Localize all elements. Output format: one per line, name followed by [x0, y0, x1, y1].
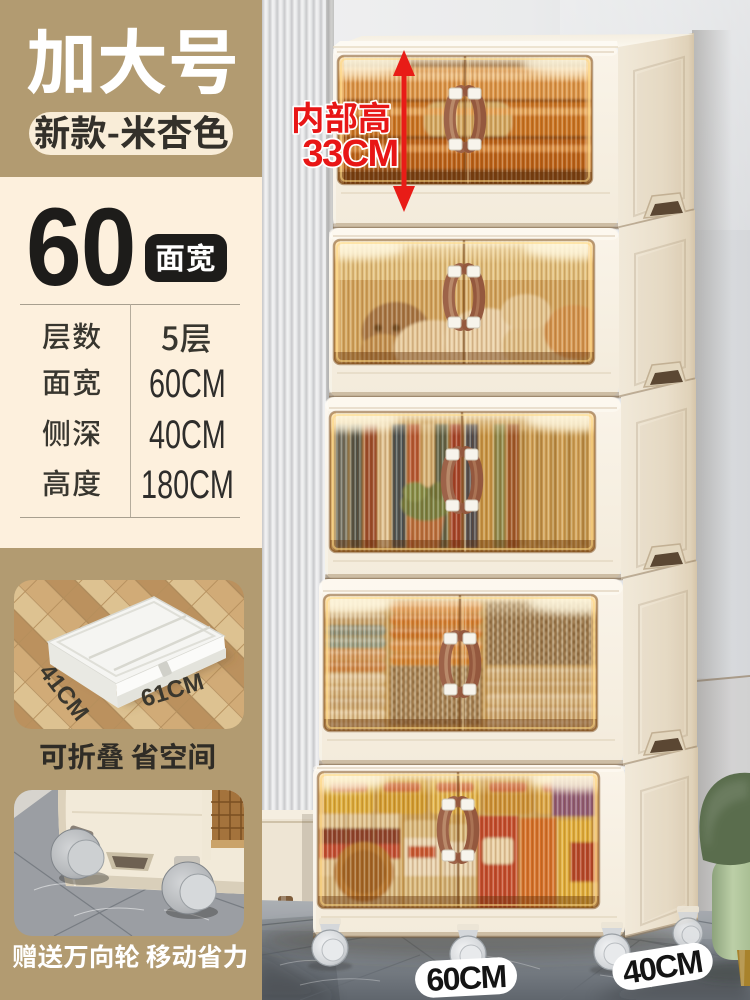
- svg-text:33CM: 33CM: [302, 133, 397, 175]
- svg-text:60CM: 60CM: [425, 958, 506, 998]
